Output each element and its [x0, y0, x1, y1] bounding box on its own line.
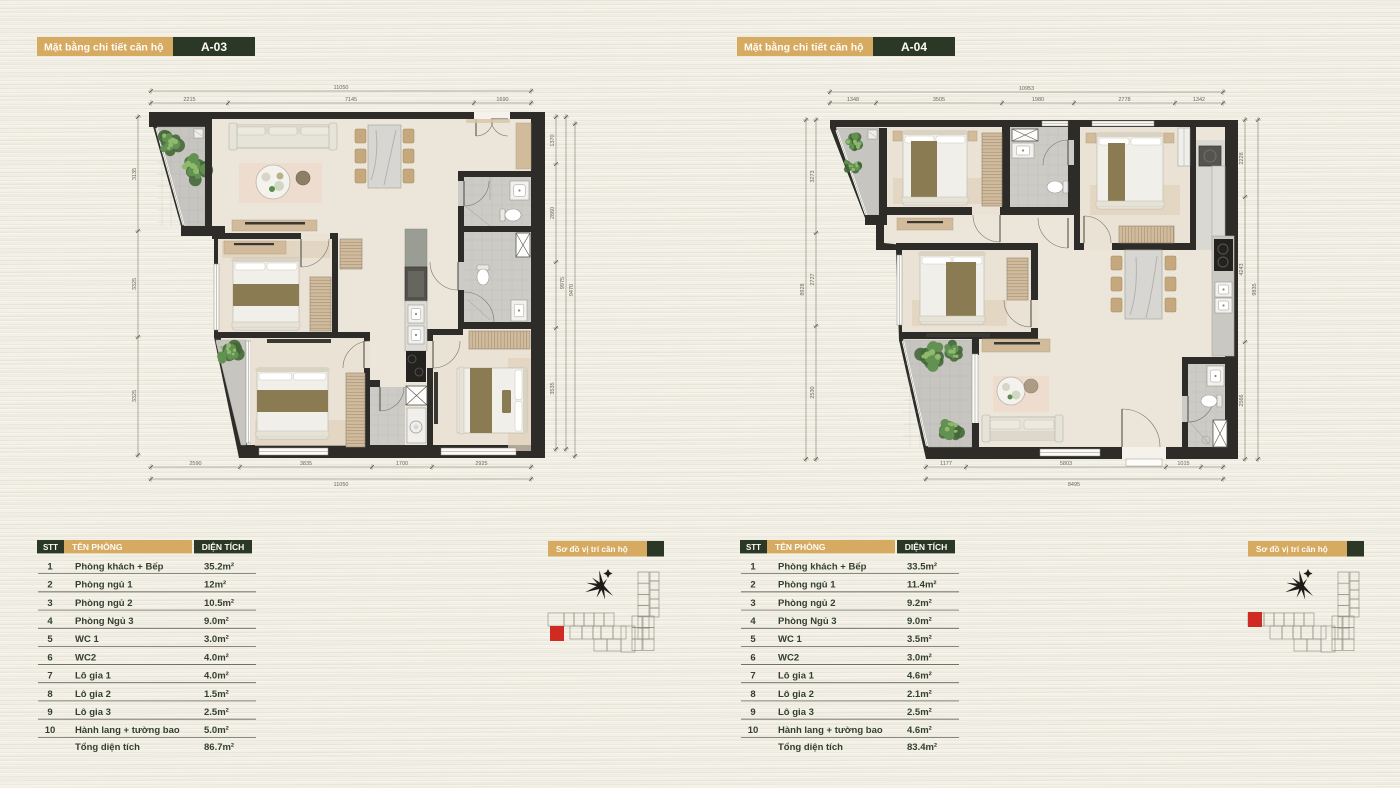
svg-text:3.0m²: 3.0m² — [907, 652, 932, 663]
svg-text:Mặt bằng chi tiết căn hộ: Mặt bằng chi tiết căn hộ — [44, 41, 164, 54]
svg-text:3.5m²: 3.5m² — [907, 634, 932, 645]
svg-text:Hành lang + tường bao: Hành lang + tường bao — [75, 725, 180, 736]
svg-text:2228: 2228 — [1239, 152, 1245, 164]
svg-text:3: 3 — [47, 598, 52, 609]
svg-text:3835: 3835 — [300, 461, 312, 467]
svg-text:1: 1 — [750, 562, 756, 573]
svg-text:STT: STT — [43, 543, 58, 552]
svg-text:3325: 3325 — [132, 390, 138, 402]
svg-text:2530: 2530 — [810, 386, 816, 398]
svg-text:WC 1: WC 1 — [778, 634, 802, 645]
svg-text:1348: 1348 — [847, 97, 859, 103]
svg-text:WC 1: WC 1 — [75, 634, 99, 645]
svg-text:3273: 3273 — [810, 170, 816, 182]
svg-text:2.1m²: 2.1m² — [907, 689, 932, 700]
svg-text:1.5m²: 1.5m² — [204, 689, 229, 700]
svg-text:2778: 2778 — [1118, 97, 1130, 103]
svg-text:WC2: WC2 — [778, 652, 799, 663]
svg-text:1177: 1177 — [940, 461, 952, 467]
svg-text:1690: 1690 — [496, 97, 508, 103]
svg-text:Phòng Ngủ 3: Phòng Ngủ 3 — [778, 616, 837, 627]
svg-text:10953: 10953 — [1019, 86, 1034, 92]
svg-text:8495: 8495 — [1068, 482, 1080, 488]
svg-text:4.6m²: 4.6m² — [907, 671, 932, 682]
svg-text:7: 7 — [750, 671, 755, 682]
svg-text:Sơ đồ vị trí căn hộ: Sơ đồ vị trí căn hộ — [1256, 545, 1328, 554]
svg-text:Phòng ngủ 2: Phòng ngủ 2 — [778, 598, 836, 609]
svg-text:4: 4 — [47, 616, 53, 627]
svg-text:10.5m²: 10.5m² — [204, 598, 234, 609]
svg-text:9.2m²: 9.2m² — [907, 598, 932, 609]
svg-text:Phòng Ngủ 3: Phòng Ngủ 3 — [75, 616, 134, 627]
svg-text:11050: 11050 — [334, 482, 349, 488]
svg-text:2.5m²: 2.5m² — [204, 707, 229, 718]
svg-text:1980: 1980 — [1032, 97, 1044, 103]
svg-text:5: 5 — [47, 634, 53, 645]
svg-text:DIỆN TÍCH: DIỆN TÍCH — [202, 541, 245, 552]
svg-text:Sơ đồ vị trí căn hộ: Sơ đồ vị trí căn hộ — [556, 545, 628, 554]
svg-text:2: 2 — [750, 580, 755, 591]
svg-text:9.0m²: 9.0m² — [204, 616, 229, 627]
svg-text:5803: 5803 — [1060, 461, 1072, 467]
svg-text:Lô gia 2: Lô gia 2 — [778, 689, 814, 700]
svg-text:Lô gia 1: Lô gia 1 — [778, 671, 815, 682]
svg-text:Hành lang + tường bao: Hành lang + tường bao — [778, 725, 883, 736]
svg-text:1342: 1342 — [1193, 97, 1205, 103]
svg-text:4.6m²: 4.6m² — [907, 725, 932, 736]
svg-text:TÊN PHÒNG: TÊN PHÒNG — [72, 541, 123, 552]
svg-text:WC2: WC2 — [75, 652, 96, 663]
svg-text:83.4m²: 83.4m² — [907, 742, 937, 753]
svg-text:10: 10 — [748, 725, 759, 736]
svg-text:9975: 9975 — [560, 277, 566, 289]
svg-text:Phòng khách + Bếp: Phòng khách + Bếp — [778, 562, 867, 573]
svg-text:9835: 9835 — [1252, 283, 1258, 295]
svg-text:1: 1 — [47, 562, 53, 573]
svg-text:1370: 1370 — [550, 134, 556, 146]
svg-text:11.4m²: 11.4m² — [907, 580, 937, 591]
svg-text:6: 6 — [47, 652, 52, 663]
svg-text:12m²: 12m² — [204, 580, 226, 591]
svg-text:11050: 11050 — [334, 85, 349, 91]
svg-text:Tổng diện tích: Tổng diện tích — [778, 742, 843, 753]
svg-text:8: 8 — [750, 689, 755, 700]
svg-text:3135: 3135 — [132, 168, 138, 180]
svg-text:86.7m²: 86.7m² — [204, 742, 234, 753]
svg-text:Lô gia 1: Lô gia 1 — [75, 671, 112, 682]
svg-text:2.5m²: 2.5m² — [907, 707, 932, 718]
svg-text:6: 6 — [750, 652, 755, 663]
svg-text:5.0m²: 5.0m² — [204, 725, 229, 736]
svg-text:A-04: A-04 — [901, 40, 927, 54]
svg-text:2215: 2215 — [183, 97, 195, 103]
svg-text:9: 9 — [750, 707, 755, 718]
svg-text:3.0m²: 3.0m² — [204, 634, 229, 645]
svg-text:2566: 2566 — [1239, 394, 1245, 406]
svg-text:3325: 3325 — [132, 278, 138, 290]
svg-text:Mặt bằng chi tiết căn hộ: Mặt bằng chi tiết căn hộ — [744, 41, 864, 54]
svg-text:2: 2 — [47, 580, 52, 591]
svg-text:10: 10 — [45, 725, 56, 736]
svg-text:DIỆN TÍCH: DIỆN TÍCH — [905, 541, 948, 552]
svg-text:8: 8 — [47, 689, 52, 700]
svg-text:TÊN PHÒNG: TÊN PHÒNG — [775, 541, 826, 552]
svg-text:2925: 2925 — [475, 461, 487, 467]
svg-text:Phòng ngủ 2: Phòng ngủ 2 — [75, 598, 133, 609]
svg-text:2590: 2590 — [189, 461, 201, 467]
svg-text:2727: 2727 — [810, 273, 816, 285]
svg-text:Phòng khách + Bếp: Phòng khách + Bếp — [75, 562, 164, 573]
svg-text:Lô gia 3: Lô gia 3 — [778, 707, 814, 718]
svg-text:7: 7 — [47, 671, 52, 682]
svg-text:7145: 7145 — [345, 97, 357, 103]
svg-text:Phòng ngủ 1: Phòng ngủ 1 — [778, 580, 836, 591]
svg-text:Tổng diện tích: Tổng diện tích — [75, 742, 140, 753]
svg-text:9: 9 — [47, 707, 52, 718]
svg-text:4.0m²: 4.0m² — [204, 671, 229, 682]
svg-text:Phòng ngủ 1: Phòng ngủ 1 — [75, 580, 133, 591]
svg-text:35.2m²: 35.2m² — [204, 562, 234, 573]
svg-text:8928: 8928 — [800, 283, 806, 295]
svg-text:9.0m²: 9.0m² — [907, 616, 932, 627]
svg-text:1700: 1700 — [396, 461, 408, 467]
svg-text:Lô gia 2: Lô gia 2 — [75, 689, 111, 700]
svg-text:33.5m²: 33.5m² — [907, 562, 937, 573]
svg-text:Lô gia 3: Lô gia 3 — [75, 707, 111, 718]
svg-text:2860: 2860 — [550, 207, 556, 219]
svg-text:STT: STT — [746, 543, 761, 552]
svg-text:5: 5 — [750, 634, 756, 645]
svg-text:1015: 1015 — [1177, 461, 1189, 467]
svg-text:4: 4 — [750, 616, 756, 627]
svg-text:4243: 4243 — [1239, 263, 1245, 275]
svg-text:4.0m²: 4.0m² — [204, 652, 229, 663]
svg-text:A-03: A-03 — [201, 40, 227, 54]
svg-text:3535: 3535 — [550, 382, 556, 394]
svg-text:9470: 9470 — [569, 284, 575, 296]
svg-text:3: 3 — [750, 598, 755, 609]
svg-text:3505: 3505 — [933, 97, 945, 103]
